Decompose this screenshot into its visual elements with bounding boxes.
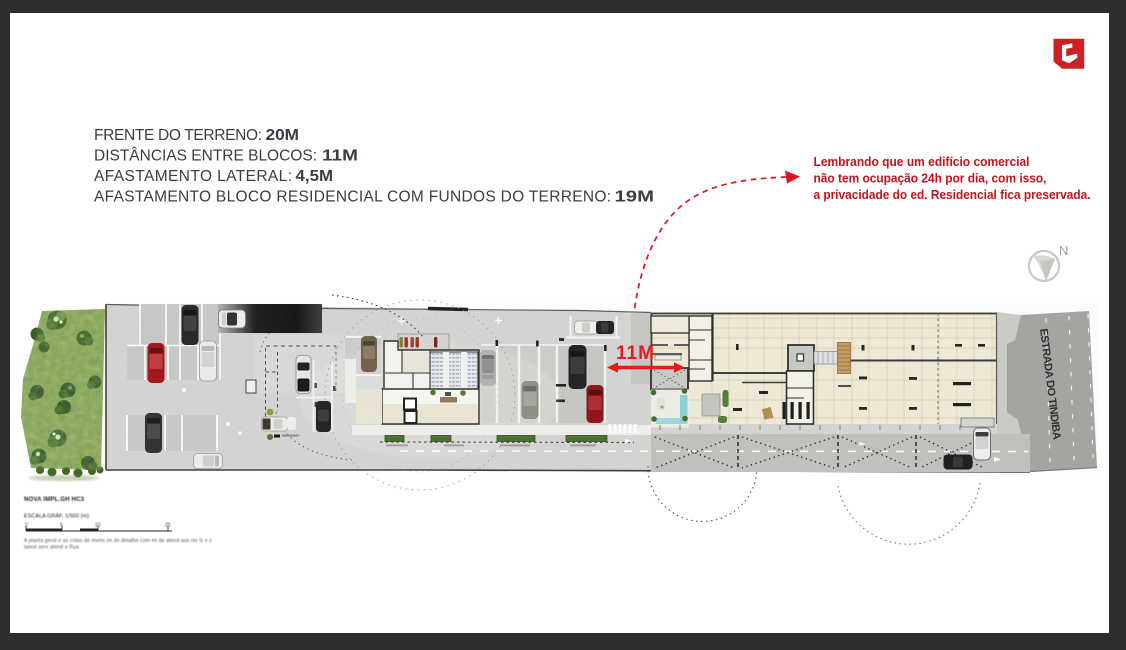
- svg-text:0: 0: [25, 523, 28, 529]
- svg-text:N: N: [1059, 243, 1068, 258]
- svg-text:A planta geral e as cotas de n: A planta geral e as cotas de niveis im d…: [24, 538, 212, 544]
- svg-text:não tem ocupação 24h por dia,: não tem ocupação 24h por dia, com isso,: [814, 171, 1047, 186]
- svg-text:11M: 11M: [322, 148, 358, 165]
- svg-text:DISTÂNCIAS ENTRE BLOCOS:: DISTÂNCIAS ENTRE BLOCOS:: [94, 148, 317, 165]
- svg-text:latest serv atend a Rua: latest serv atend a Rua: [24, 545, 79, 551]
- svg-text:NOVA IMPL.GH HC3: NOVA IMPL.GH HC3: [24, 497, 85, 503]
- svg-text:19M: 19M: [615, 189, 655, 206]
- svg-text:a privacidade do ed. Residenci: a privacidade do ed. Residencial fica pr…: [814, 187, 1091, 202]
- svg-text:ESCALA GRÁF. 1/500 (m): ESCALA GRÁF. 1/500 (m): [24, 513, 89, 520]
- svg-text:AFASTAMENTO BLOCO RESIDENCIAL: AFASTAMENTO BLOCO RESIDENCIAL COM FUNDOS…: [94, 189, 611, 206]
- svg-text:FRENTE DO TERRENO:: FRENTE DO TERRENO:: [94, 127, 262, 144]
- svg-text:AFASTAMENTO LATERAL:: AFASTAMENTO LATERAL:: [94, 168, 292, 185]
- svg-text:20M: 20M: [266, 127, 300, 144]
- svg-text:25: 25: [165, 523, 171, 529]
- svg-text:Lembrando que um edifício come: Lembrando que um edifício comercial: [814, 154, 1030, 169]
- svg-text:5: 5: [60, 523, 63, 529]
- svg-text:10: 10: [95, 523, 101, 529]
- svg-text:4,5M: 4,5M: [296, 168, 334, 185]
